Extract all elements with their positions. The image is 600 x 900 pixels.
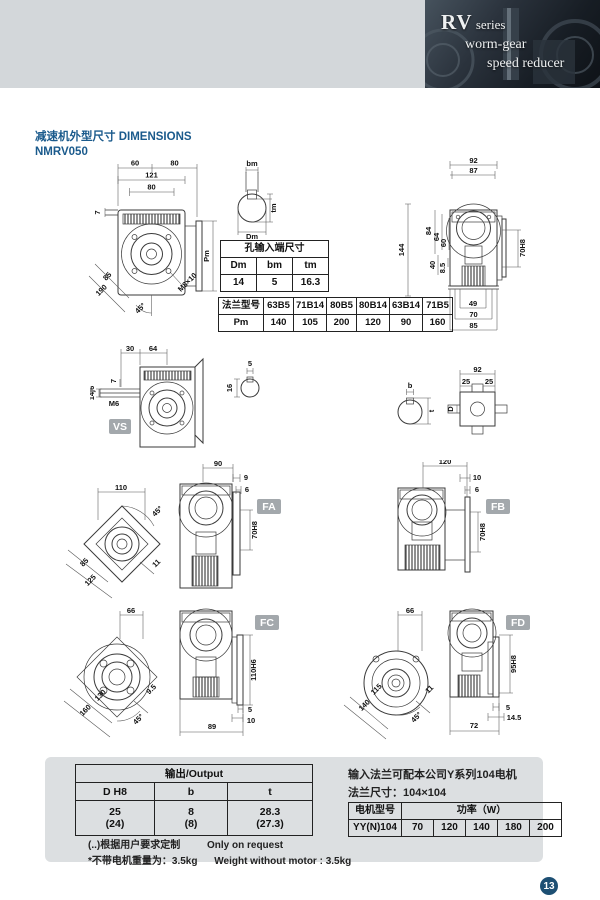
dim-label: t xyxy=(427,409,436,412)
fc-dimensions: 66 130 160 9.5 45° 110H6 5 10 89 xyxy=(64,606,258,737)
dim-label: 14.5 xyxy=(507,713,522,722)
cell: 140 xyxy=(264,315,294,332)
dim-label: 95H8 xyxy=(509,655,518,673)
fb-outline xyxy=(398,488,470,572)
dim-label: 89 xyxy=(208,722,216,731)
flange-model-table: 法兰型号 63B5 71B14 80B5 80B14 63B14 71B5 Pm… xyxy=(218,297,453,332)
cell: 200 xyxy=(327,315,357,332)
note-en: Only on request xyxy=(207,840,283,851)
dim-label: 66 xyxy=(127,606,135,615)
cell: 105 xyxy=(294,315,327,332)
dim-label: bm xyxy=(246,160,258,168)
fb-view-drawing: 120 10 6 70H8 xyxy=(393,460,488,578)
note-cn: (..)根据用户要求定制 xyxy=(88,840,180,851)
dim-label: 45° xyxy=(150,504,164,518)
note-cn: *不带电机重量为：3.5kg xyxy=(88,856,197,867)
dim-label: 5 xyxy=(248,359,252,368)
cell: 71B14 xyxy=(294,298,327,315)
dim-label: 60 xyxy=(131,159,139,168)
variant-badge-fa: FA xyxy=(257,499,281,514)
dim-label: 70H8 xyxy=(478,523,487,541)
dim-label: 9 xyxy=(244,473,248,482)
value-alt: (8) xyxy=(157,818,225,830)
variant-badge-fb: FB xyxy=(486,499,510,514)
col-header: tm xyxy=(293,258,329,275)
cell: 14 xyxy=(221,275,257,292)
col-header: D H8 xyxy=(76,783,155,801)
series-subtitle-2: speed reducer xyxy=(487,56,564,72)
dim-label: 7 xyxy=(109,379,118,383)
cell: 200 xyxy=(530,820,562,837)
dim-label: 6 xyxy=(475,485,479,494)
dim-label: 115 xyxy=(369,682,384,697)
rv-text: RV xyxy=(441,10,473,34)
dim-label: 10 xyxy=(247,716,255,725)
dim-label: 5 xyxy=(506,703,510,712)
dim-label: 25 xyxy=(462,377,470,386)
dim-label: 92 xyxy=(469,158,477,165)
cell: 71B5 xyxy=(423,298,453,315)
dim-label: 160 xyxy=(78,703,93,718)
dim-label: 85 xyxy=(469,321,477,330)
cell: 5 xyxy=(257,275,293,292)
row-header: Pm xyxy=(219,315,264,332)
dim-label: 16 xyxy=(225,384,234,392)
dim-label: 5 xyxy=(248,705,252,714)
input-keyway-inset: bm tm Dm xyxy=(225,160,280,240)
note-line-1: (..)根据用户要求定制 Only on request xyxy=(88,836,283,851)
cell: 160 xyxy=(423,315,453,332)
dim-label: 10 xyxy=(473,473,481,482)
input-hole-dimension-table: 孔输入端尺寸 Dm bm tm 14 5 16.3 xyxy=(220,240,329,292)
dim-label: 90 xyxy=(214,460,222,468)
dim-label: 9.5 xyxy=(144,682,158,696)
dim-label: 7 xyxy=(93,210,102,214)
output-shaft-drawing: b t D 92 25 25 xyxy=(390,362,515,440)
keyway-outline xyxy=(238,172,266,222)
title-en: DIMENSIONS xyxy=(119,131,192,143)
dim-label: 70H8 xyxy=(250,521,259,539)
dim-label: 30 xyxy=(126,345,134,353)
dim-label: 70H8 xyxy=(518,239,527,257)
dim-label: 6 xyxy=(245,485,249,494)
motor-power-table: 电机型号 功率（W） YY(N)104 70 120 140 180 200 xyxy=(348,802,562,837)
dim-label: 92 xyxy=(473,365,481,374)
fc-outline xyxy=(77,609,243,717)
dim-label: Dm xyxy=(246,232,258,240)
cell: 90 xyxy=(390,315,423,332)
cell: 25(24) xyxy=(76,801,155,836)
note-en: Weight without motor : 3.5kg xyxy=(214,856,351,867)
dim-label: 49 xyxy=(469,299,477,308)
value-alt: (27.3) xyxy=(230,818,310,830)
motor-info-line-2: 法兰尺寸：104×104 xyxy=(348,784,446,800)
cell: 120 xyxy=(357,315,390,332)
dim-label: 25 xyxy=(485,377,493,386)
cell: 70 xyxy=(402,820,434,837)
cell: 28.3(27.3) xyxy=(228,801,313,836)
dim-label: 140 xyxy=(357,698,372,713)
dim-label: 40 xyxy=(428,261,437,269)
col-header: t xyxy=(228,783,313,801)
dim-label: 121 xyxy=(145,171,158,180)
dim-label: 80 xyxy=(170,159,178,168)
output-dimension-table: 输出/Output D H8 b t 25(24) 8(8) 28.3(27.3… xyxy=(75,764,313,836)
cell: 180 xyxy=(498,820,530,837)
variant-badge-fd: FD xyxy=(506,615,530,630)
dim-label: 72 xyxy=(470,721,478,730)
col-header: bm xyxy=(257,258,293,275)
dim-label: 45° xyxy=(409,710,423,724)
series-title: RV series xyxy=(441,10,505,35)
dim-label: 45° xyxy=(133,301,147,315)
dim-label: 11 xyxy=(150,557,162,569)
table-title: 孔输入端尺寸 xyxy=(221,241,329,258)
dim-label: 11 xyxy=(423,683,435,695)
header-gray-block xyxy=(0,0,425,88)
dim-label: 110H6 xyxy=(249,659,258,681)
fa-view-drawing: 110 45° 85 125 11 90 9 6 70H8 xyxy=(60,460,275,600)
keyway-dimensions: bm tm Dm xyxy=(238,160,278,240)
dim-label: 87 xyxy=(469,166,477,175)
dim-label: 14j6 xyxy=(90,386,96,401)
dim-label: b xyxy=(408,381,413,390)
page-number: 13 xyxy=(540,877,558,895)
cell: 63B5 xyxy=(264,298,294,315)
dim-label: 45° xyxy=(131,712,145,726)
col-header: Dm xyxy=(221,258,257,275)
variant-badge-vs: VS xyxy=(109,419,131,434)
fa-dimensions: 110 45° 85 125 11 90 9 6 70H8 xyxy=(66,460,259,598)
cell: 16.3 xyxy=(293,275,329,292)
dim-label: 64 xyxy=(149,345,158,353)
dim-label: 110 xyxy=(115,483,127,492)
page-title: 减速机外型尺寸 DIMENSIONS NMRV050 xyxy=(35,130,192,160)
cell: YY(N)104 xyxy=(349,820,402,837)
col-header: b xyxy=(155,783,228,801)
dim-label: 80 xyxy=(147,183,155,192)
table-title: 输出/Output xyxy=(76,765,313,783)
variant-badge-fc: FC xyxy=(255,615,279,630)
fc-view-drawing: 66 130 160 9.5 45° 110H6 5 10 89 xyxy=(60,605,260,740)
dim-label: 66 xyxy=(406,606,414,615)
header-photo: RV series worm-gear speed reducer xyxy=(425,0,600,88)
dim-label: M6 xyxy=(109,399,119,408)
cell: 8(8) xyxy=(155,801,228,836)
dim-label: Pm xyxy=(202,250,211,262)
dim-label: 190 xyxy=(94,283,109,298)
dim-label: tm xyxy=(269,203,278,212)
cell: 120 xyxy=(434,820,466,837)
catalog-page: RV series worm-gear speed reducer 减速机外型尺… xyxy=(0,0,600,900)
series-subtitle-1: worm-gear xyxy=(465,37,526,53)
value-alt: (24) xyxy=(78,818,152,830)
cell: 80B5 xyxy=(327,298,357,315)
front-view-drawing: 60 80 121 80 7 Pm 85 190 45° M8×10 xyxy=(85,158,235,328)
value: 28.3 xyxy=(230,806,310,818)
row-header: 法兰型号 xyxy=(219,298,264,315)
fb-dimensions: 120 10 6 70H8 xyxy=(423,460,487,552)
cell: 63B14 xyxy=(390,298,423,315)
side-view-outline xyxy=(447,204,507,289)
fd-view-drawing: 66 115 140 11 45° 95H8 5 14.5 72 xyxy=(338,605,583,740)
dim-label: 120 xyxy=(439,460,452,466)
col-header: 功率（W） xyxy=(402,803,562,820)
shaft-dimensions: b t D 92 25 25 xyxy=(407,365,496,424)
dim-label: 130 xyxy=(93,688,108,703)
dim-label: 60 xyxy=(439,239,448,247)
front-view-dimensions: 60 80 121 80 7 Pm 85 190 45° M8×10 xyxy=(89,159,217,317)
motor-info-line-1: 输入法兰可配本公司Y系列104电机 xyxy=(348,766,517,782)
note-line-2: *不带电机重量为：3.5kg Weight without motor : 3.… xyxy=(88,852,351,867)
dim-label: D xyxy=(446,406,455,412)
cell: 80B14 xyxy=(357,298,390,315)
dim-label: 70 xyxy=(469,310,477,319)
fd-outline xyxy=(364,609,499,715)
cell: 140 xyxy=(466,820,498,837)
fa-outline xyxy=(84,483,240,588)
col-header: 电机型号 xyxy=(349,803,402,820)
vs-view-drawing: 30 64 7 14j6 M6 5 16 xyxy=(90,345,265,457)
value: 8 xyxy=(157,806,225,818)
value: 25 xyxy=(78,806,152,818)
dim-label: 144 xyxy=(398,243,406,256)
dim-label: 8.5 xyxy=(438,263,447,273)
title-cn: 减速机外型尺寸 xyxy=(35,131,116,143)
